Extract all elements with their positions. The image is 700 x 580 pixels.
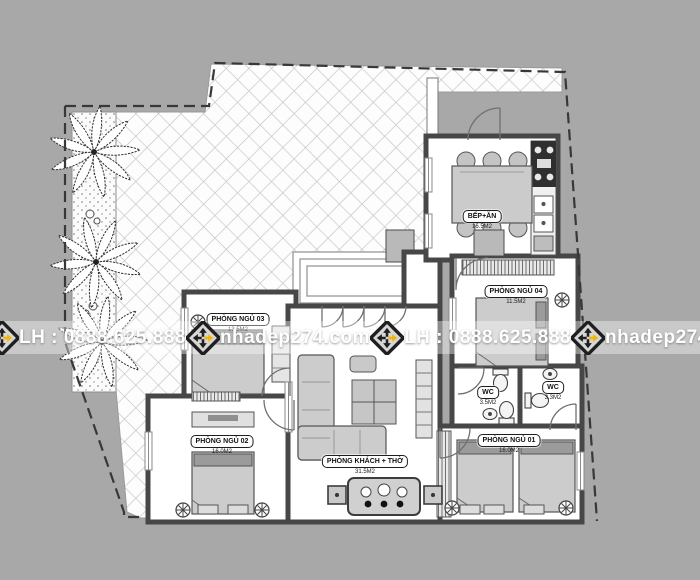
- nhadep274-logo-icon: [186, 321, 220, 355]
- window: [145, 432, 152, 470]
- watermark-banner: LH : 0888.625.888 nhadep274.com LH : 088…: [0, 321, 700, 354]
- room-area: 16.0M2: [191, 449, 254, 456]
- room-area: 3.3M2: [542, 395, 564, 402]
- ceiling-fan-icon: [445, 501, 459, 515]
- room-label-bedroom-04: PHÒNG NGỦ 04 11.5M2: [485, 280, 548, 306]
- window: [285, 382, 292, 432]
- stove-icon: [531, 141, 556, 187]
- nhadep274-logo-icon: [370, 321, 404, 355]
- watermark-website-text: nhadep274.com: [605, 327, 700, 349]
- dresser: [192, 392, 240, 401]
- altar-table: [348, 478, 420, 515]
- room-name: PHÒNG NGỦ 02: [191, 435, 254, 448]
- window: [577, 452, 584, 490]
- room-label-bedroom-01: PHÒNG NGỦ 01 16.0M2: [478, 429, 541, 455]
- room-name: PHÒNG KHÁCH + THỜ: [322, 455, 408, 468]
- tv-cabinet: [416, 360, 432, 438]
- room-label-living-worship: PHÒNG KHÁCH + THỜ 31.5M2: [322, 450, 408, 476]
- room-area: 16.0M2: [478, 448, 541, 455]
- room-area: 16.5M2: [463, 224, 502, 231]
- ceiling-fan-icon: [255, 503, 269, 517]
- kitchen-island: [474, 230, 504, 256]
- sink-icon: [483, 409, 497, 420]
- toilet-icon: [499, 402, 514, 425]
- nhadep274-logo-icon: [571, 321, 605, 355]
- floor-plan-canvas: PHÒNG NGỦ 03 13.5M2 PHÒNG NGỦ 02 16.0M2 …: [0, 0, 700, 580]
- room-label-wc-right: WC 3.3M2: [542, 376, 564, 402]
- coffee-table: [352, 380, 396, 424]
- nhadep274-logo-icon: [0, 321, 19, 355]
- room-name: WC: [477, 386, 499, 399]
- room-area: 31.5M2: [322, 469, 408, 476]
- room-name: PHÒNG NGỦ 04: [485, 285, 548, 298]
- watermark-phone-text: LH : 0888.625.888: [19, 327, 186, 349]
- room-label-wc-left: WC 3.5M2: [477, 381, 499, 407]
- room-area: 11.5M2: [485, 299, 548, 306]
- ceiling-fan-icon: [176, 503, 190, 517]
- side-table: [350, 356, 376, 372]
- room-name: WC: [542, 381, 564, 394]
- watermark-website-text: nhadep274.com: [220, 327, 370, 349]
- room-area: 3.5M2: [477, 400, 499, 407]
- wall-stub: [427, 78, 438, 138]
- room-name: PHÒNG NGỦ 01: [478, 434, 541, 447]
- wardrobe: [462, 260, 554, 275]
- ceiling-fan-icon: [555, 293, 569, 307]
- room-name: BẾP+ĂN: [463, 210, 502, 223]
- sink-icon: [534, 196, 553, 251]
- room-label-bedroom-02: PHÒNG NGỦ 02 16.0M2: [191, 430, 254, 456]
- room-label-kitchen-dining: BẾP+ĂN 16.5M2: [463, 205, 502, 231]
- watermark-phone-text: LH : 0888.625.888: [404, 327, 571, 349]
- ceiling-fan-icon: [559, 501, 573, 515]
- window: [425, 158, 432, 192]
- tv-dresser: [192, 412, 254, 427]
- floor-plan-drawing: [0, 0, 700, 580]
- window: [425, 214, 432, 248]
